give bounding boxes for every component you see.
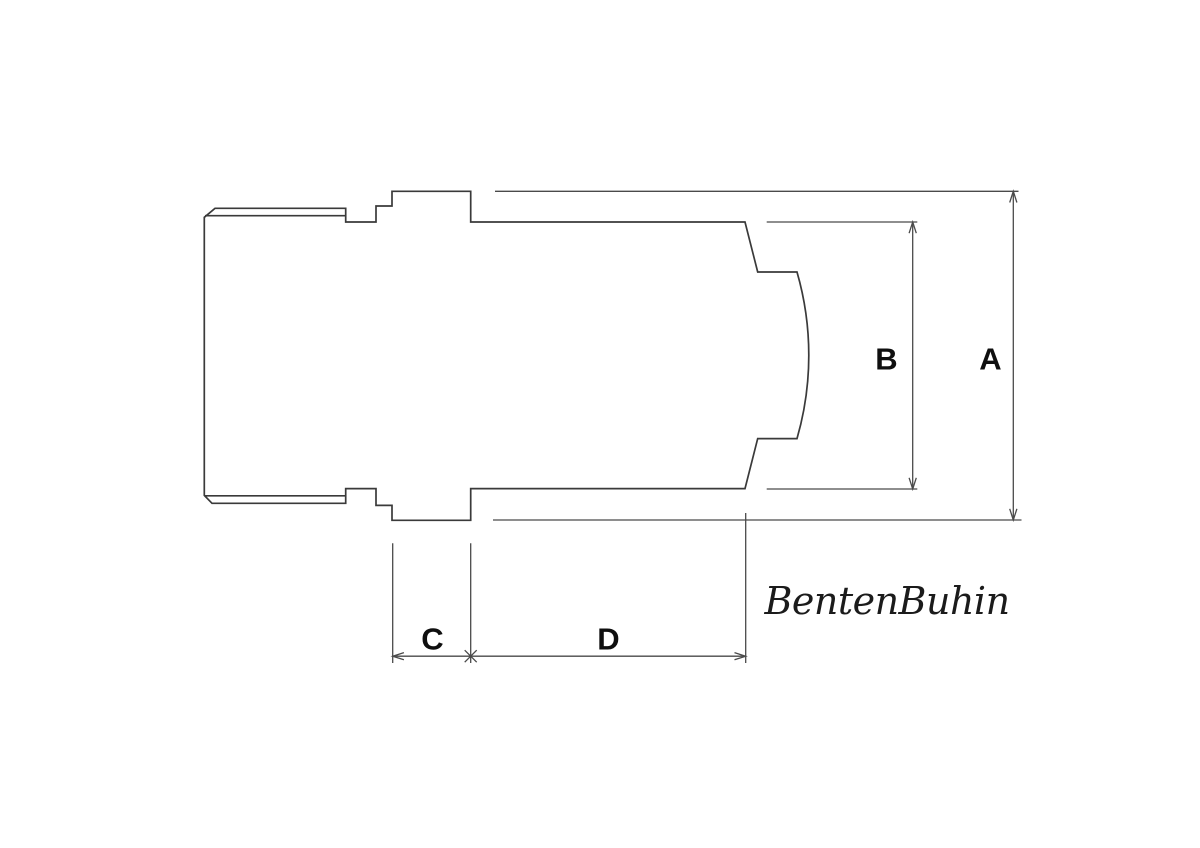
dimension-label-b: B — [875, 342, 897, 377]
dimension-label-c: C — [421, 622, 443, 657]
part-profile — [204, 191, 808, 520]
dimension-label-a: A — [979, 342, 1001, 377]
drawing-canvas: B A C D BentenBuhin — [0, 0, 1200, 848]
dim-a-extension-lines — [493, 191, 1022, 520]
brand-signature: BentenBuhin — [763, 579, 1009, 623]
part-outline — [204, 191, 808, 520]
dimension-label-d: D — [597, 622, 619, 657]
technical-drawing: B A C D BentenBuhin — [0, 0, 1200, 848]
dim-cd-extension-lines — [393, 513, 746, 663]
